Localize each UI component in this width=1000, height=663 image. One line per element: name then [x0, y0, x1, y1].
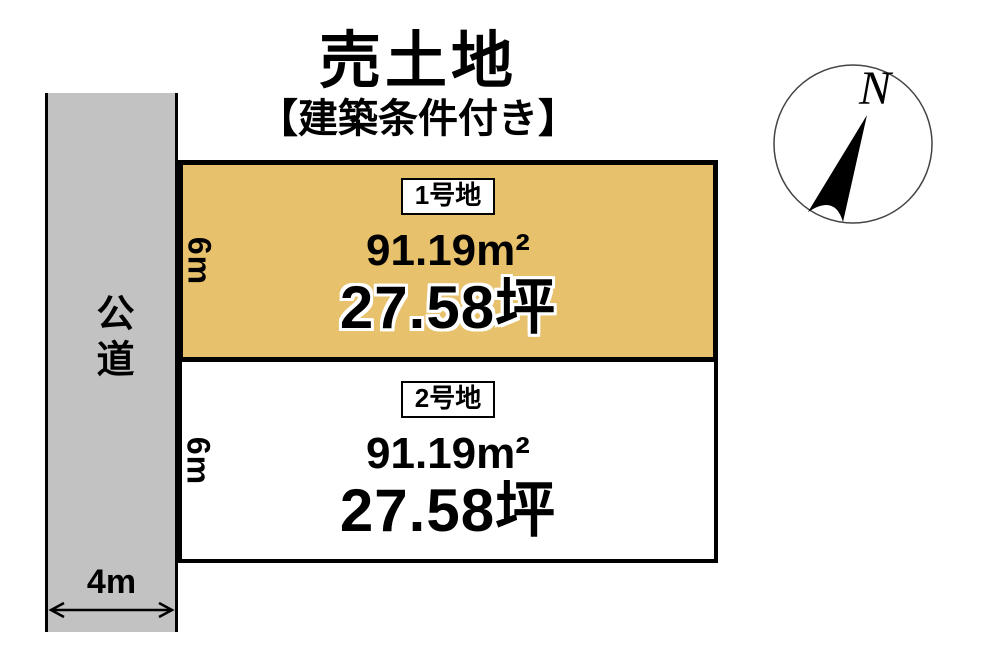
plot-1-frontage-label: 6m	[181, 237, 218, 285]
plot-2-frontage-label: 6m	[180, 436, 217, 484]
plot-2: 6m 2号地 91.19m² 27.58坪	[178, 362, 718, 563]
plot-2-id-badge: 2号地	[401, 381, 495, 418]
land-sale-diagram: 売土地 【建築条件付き】 公道 4m 6m 1号地 91.19m² 27.58坪…	[0, 0, 1000, 663]
plot-2-area-tsubo: 27.58坪	[340, 481, 556, 541]
road: 公道 4m	[45, 93, 178, 632]
compass-north-label: N	[858, 62, 894, 115]
road-width-arrow-icon	[48, 601, 175, 619]
plot-1-area-tsubo: 27.58坪	[340, 278, 556, 338]
plot-1-id-badge: 1号地	[401, 178, 495, 215]
road-width-dimension: 4m	[48, 565, 175, 624]
plot-1-area-sqm: 91.19m²	[366, 228, 530, 274]
road-width-label: 4m	[48, 565, 175, 599]
plot-2-area-sqm: 91.19m²	[366, 431, 530, 477]
plot-1-id-text: 1号地	[415, 180, 481, 210]
compass: N	[765, 56, 941, 232]
road-label: 公道	[84, 293, 139, 385]
page-subtitle: 【建築条件付き】	[118, 86, 718, 144]
plot-1: 6m 1号地 91.19m² 27.58坪	[178, 160, 718, 362]
plot-2-id-text: 2号地	[415, 383, 481, 413]
